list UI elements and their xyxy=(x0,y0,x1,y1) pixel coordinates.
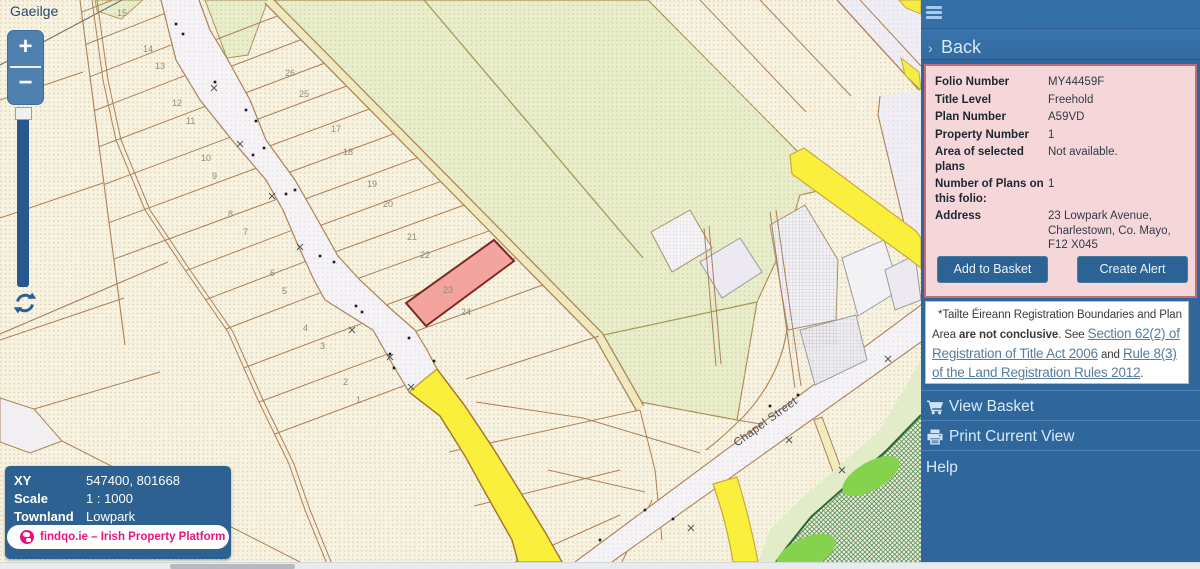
svg-text:25: 25 xyxy=(299,89,309,99)
svg-text:2: 2 xyxy=(343,377,348,387)
svg-text:9: 9 xyxy=(212,171,217,181)
svg-text:21: 21 xyxy=(407,232,417,242)
svg-text:11: 11 xyxy=(186,116,195,126)
svg-text:17: 17 xyxy=(331,124,341,134)
svg-text:14: 14 xyxy=(143,44,153,54)
svg-text:4: 4 xyxy=(303,323,308,333)
svg-text:18: 18 xyxy=(343,147,353,157)
svg-text:13: 13 xyxy=(155,61,165,71)
svg-text:26: 26 xyxy=(285,68,295,78)
svg-text:7: 7 xyxy=(243,227,248,237)
svg-text:20: 20 xyxy=(383,199,393,209)
svg-text:3: 3 xyxy=(320,341,325,351)
svg-text:10: 10 xyxy=(201,153,211,163)
svg-text:23: 23 xyxy=(443,285,453,295)
svg-text:1: 1 xyxy=(356,395,361,405)
svg-text:19: 19 xyxy=(367,179,377,189)
svg-text:12: 12 xyxy=(172,98,182,108)
svg-text:24: 24 xyxy=(461,307,471,317)
svg-text:6: 6 xyxy=(270,268,275,278)
svg-text:5: 5 xyxy=(282,286,287,296)
svg-text:22: 22 xyxy=(420,250,430,260)
svg-text:8: 8 xyxy=(228,209,233,219)
svg-text:15: 15 xyxy=(117,8,127,18)
